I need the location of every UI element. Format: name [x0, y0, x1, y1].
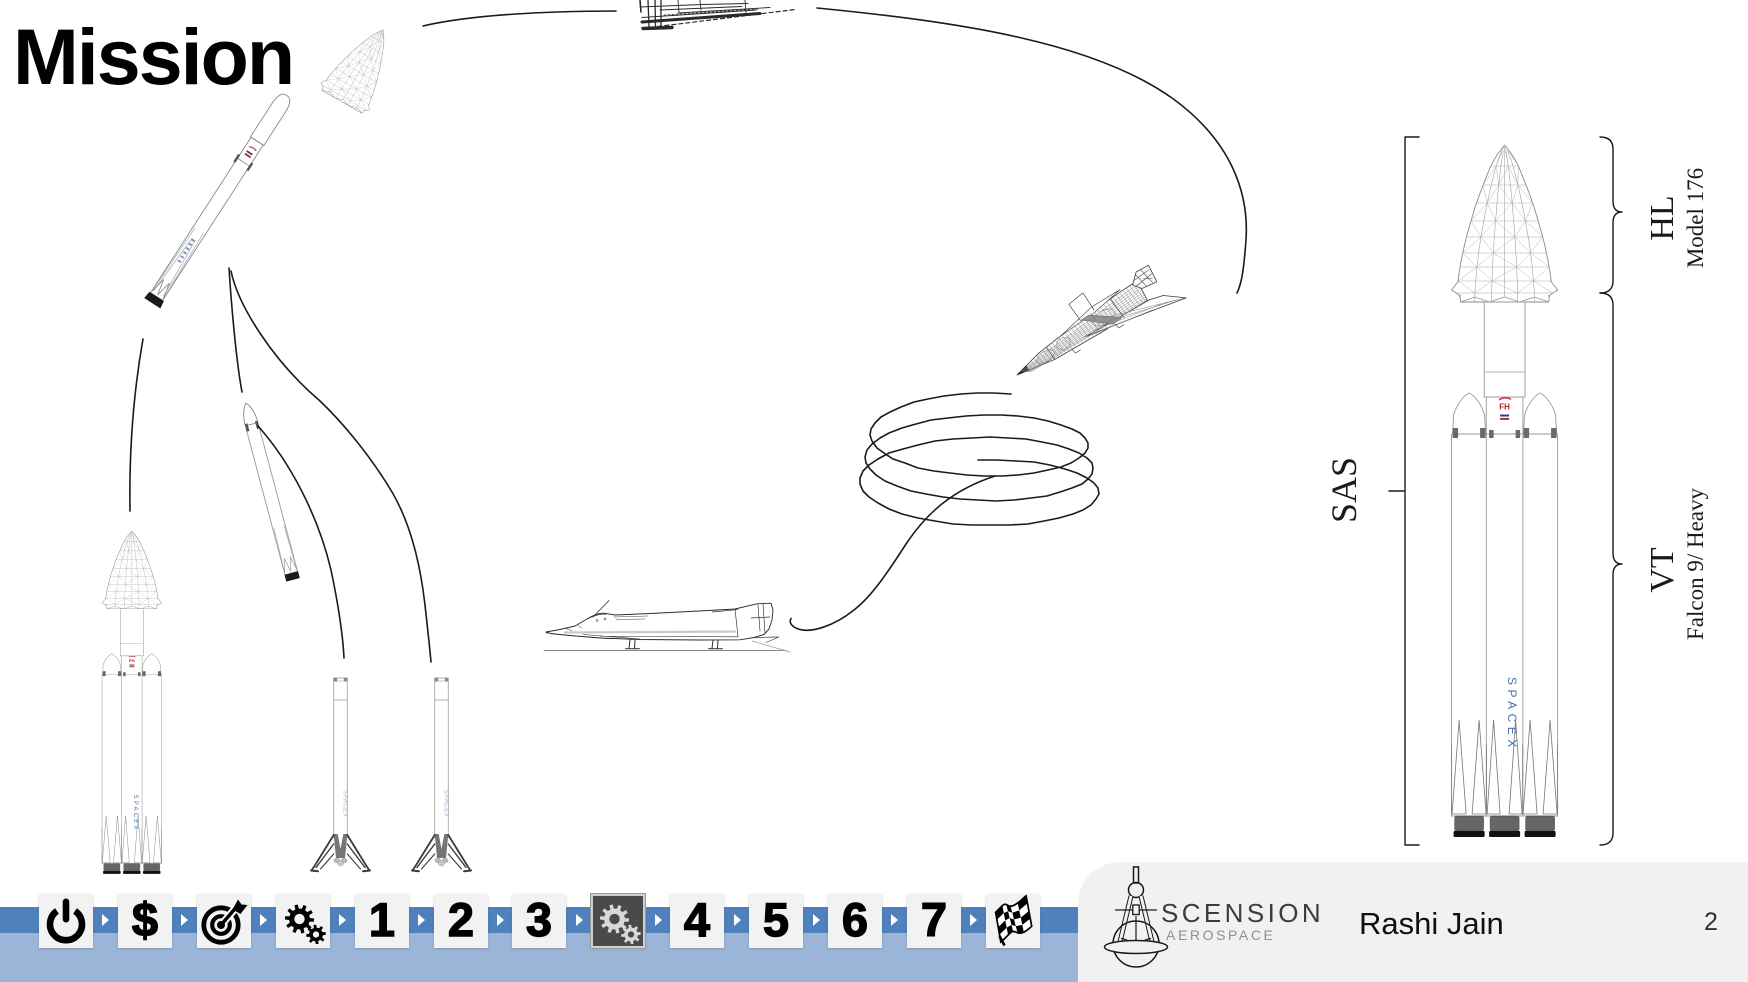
svg-text:Model 176: Model 176	[1683, 168, 1708, 268]
svg-text:VT: VT	[1644, 547, 1681, 593]
svg-text:Falcon 9/ Heavy: Falcon 9/ Heavy	[1683, 487, 1708, 640]
svg-text:HL: HL	[1644, 195, 1681, 240]
svg-text:SAS: SAS	[1324, 457, 1364, 523]
